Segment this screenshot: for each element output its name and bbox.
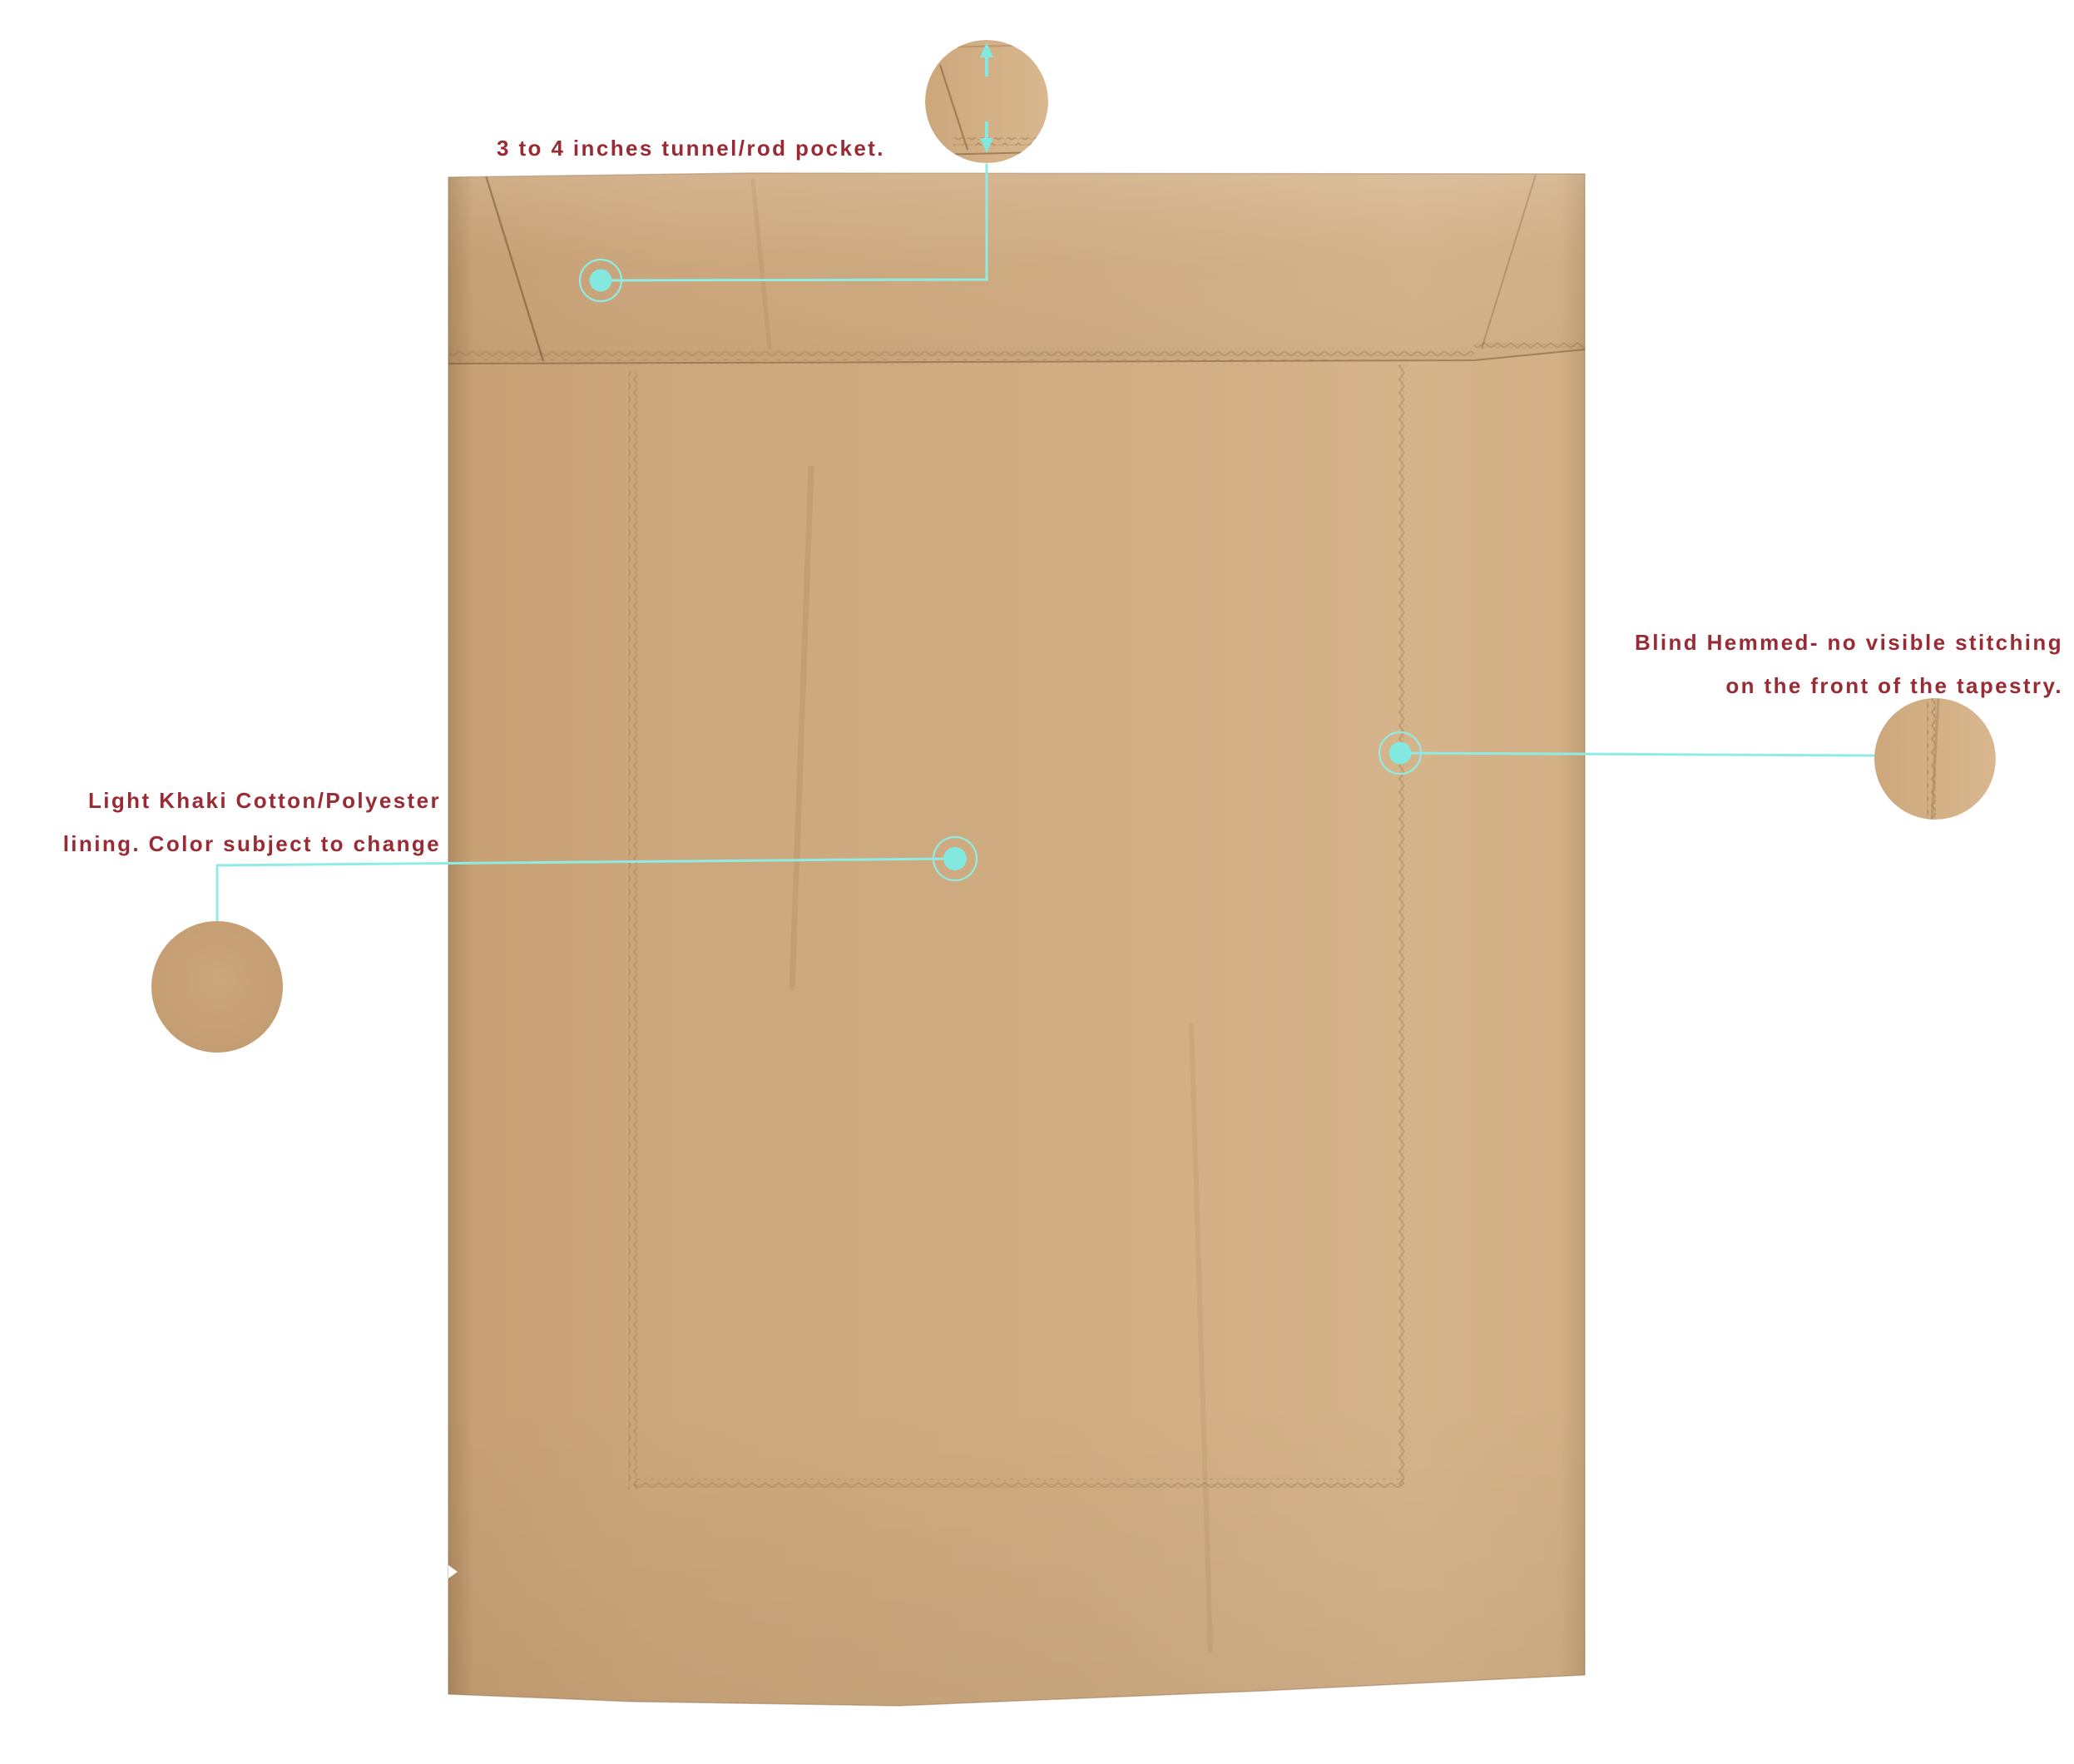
rod-pocket-detail-circle xyxy=(925,40,1048,163)
tapestry-annotation-diagram: 3 to 4 inches tunnel/rod pocket. Light K… xyxy=(0,0,2074,1764)
rod-pocket-label: 3 to 4 inches tunnel/rod pocket. xyxy=(497,126,885,170)
detail-pocket-stitch xyxy=(953,137,1037,146)
annotation-overlay xyxy=(0,0,2074,1764)
vertical-shade xyxy=(448,173,1585,1708)
blind-hem-label: Blind Hemmed- no visible stitching on th… xyxy=(1635,621,2063,707)
tapestry-back-panel xyxy=(448,173,1585,1708)
lining-swatch-circle xyxy=(151,921,283,1053)
blind-hem-detail-circle xyxy=(1874,698,1996,820)
lining-label-line1: Light Khaki Cotton/Polyester xyxy=(63,779,441,822)
detail-hem-stitch xyxy=(1927,698,1936,820)
lining-label: Light Khaki Cotton/Polyester lining. Col… xyxy=(63,779,441,865)
blind-hem-label-line1: Blind Hemmed- no visible stitching xyxy=(1635,621,2063,664)
blind-hem-label-line2: on the front of the tapestry. xyxy=(1635,664,2063,707)
lining-label-line2: lining. Color subject to change xyxy=(63,822,441,865)
